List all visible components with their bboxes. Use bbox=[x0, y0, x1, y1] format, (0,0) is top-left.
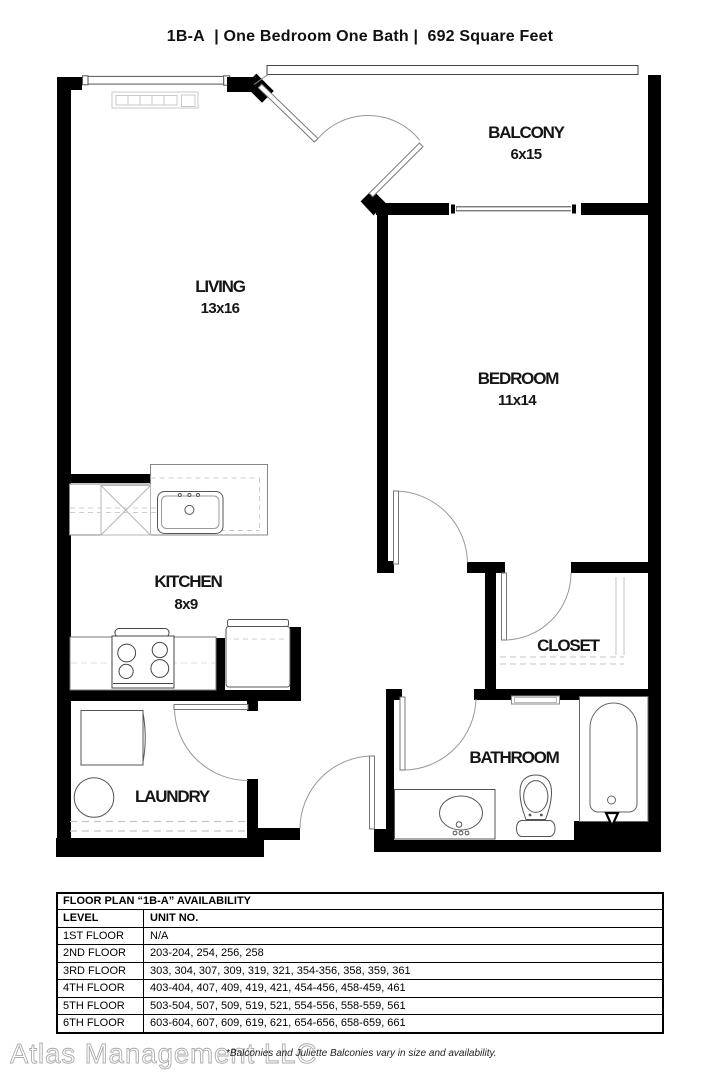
svg-text:LAUNDRY: LAUNDRY bbox=[135, 787, 211, 806]
svg-text:BEDROOM: BEDROOM bbox=[478, 369, 559, 388]
svg-text:6x15: 6x15 bbox=[511, 146, 542, 163]
svg-text:13x16: 13x16 bbox=[201, 300, 240, 317]
svg-text:11x14: 11x14 bbox=[498, 392, 537, 409]
svg-text:LIVING: LIVING bbox=[195, 277, 245, 296]
svg-text:8x9: 8x9 bbox=[174, 596, 197, 613]
svg-text:KITCHEN: KITCHEN bbox=[154, 572, 222, 591]
svg-text:BALCONY: BALCONY bbox=[488, 123, 566, 142]
svg-text:CLOSET: CLOSET bbox=[537, 636, 601, 655]
svg-text:BATHROOM: BATHROOM bbox=[469, 748, 559, 767]
